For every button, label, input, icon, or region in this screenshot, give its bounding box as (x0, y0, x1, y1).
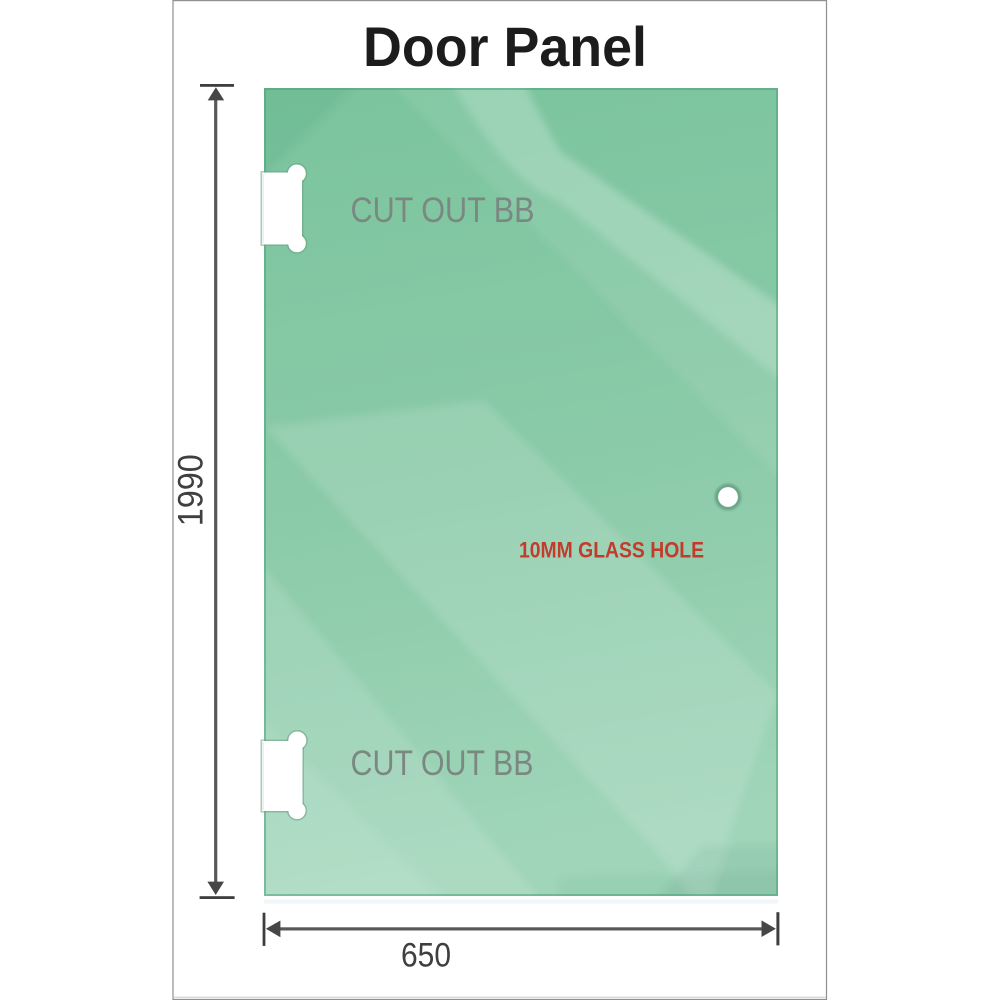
svg-text:CUT OUT BB: CUT OUT BB (351, 744, 534, 783)
svg-text:650: 650 (401, 937, 451, 975)
svg-text:1990: 1990 (172, 454, 211, 526)
svg-text:Door Panel: Door Panel (363, 15, 647, 78)
svg-text:CUT OUT BB: CUT OUT BB (351, 191, 535, 230)
svg-text:10MM GLASS HOLE: 10MM GLASS HOLE (519, 538, 704, 563)
